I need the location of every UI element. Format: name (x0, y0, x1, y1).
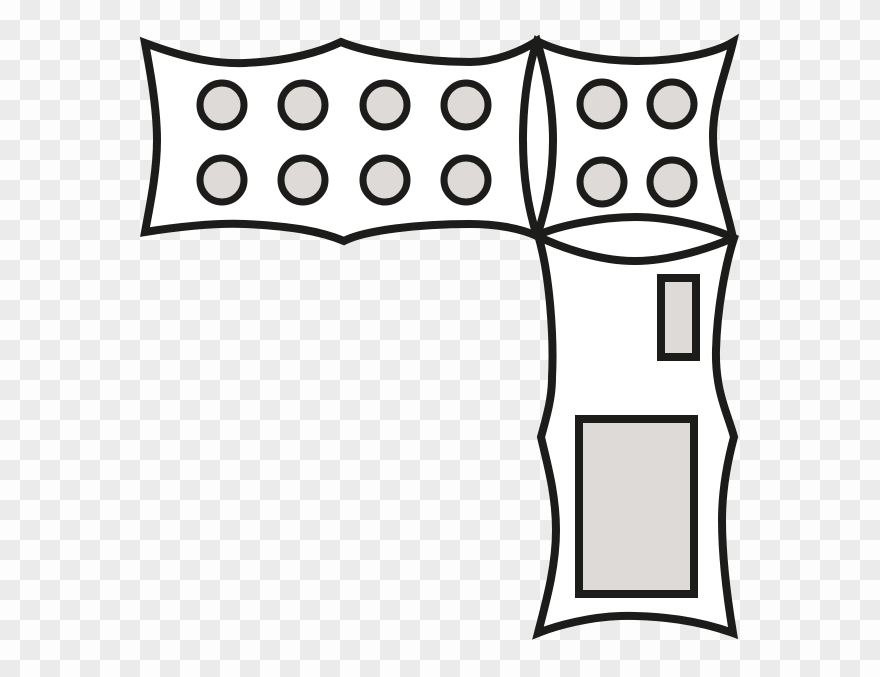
small-inner-rect (661, 278, 696, 357)
stud-circle (580, 160, 624, 204)
stud-circle (363, 83, 407, 127)
stud-circle (281, 158, 325, 202)
stud-circle (580, 82, 624, 126)
stud-circle (650, 82, 694, 126)
stud-circle (200, 158, 244, 202)
stud-circle (200, 83, 244, 127)
stud-circle (650, 160, 694, 204)
stud-circle (444, 83, 488, 127)
banner-line-art (0, 0, 880, 677)
stud-circle (444, 158, 488, 202)
large-inner-rect (579, 419, 694, 594)
clipart-canvas (0, 0, 880, 677)
banner-horizontal-fill (145, 41, 553, 241)
stud-circle (363, 158, 407, 202)
stud-circle (281, 83, 325, 127)
